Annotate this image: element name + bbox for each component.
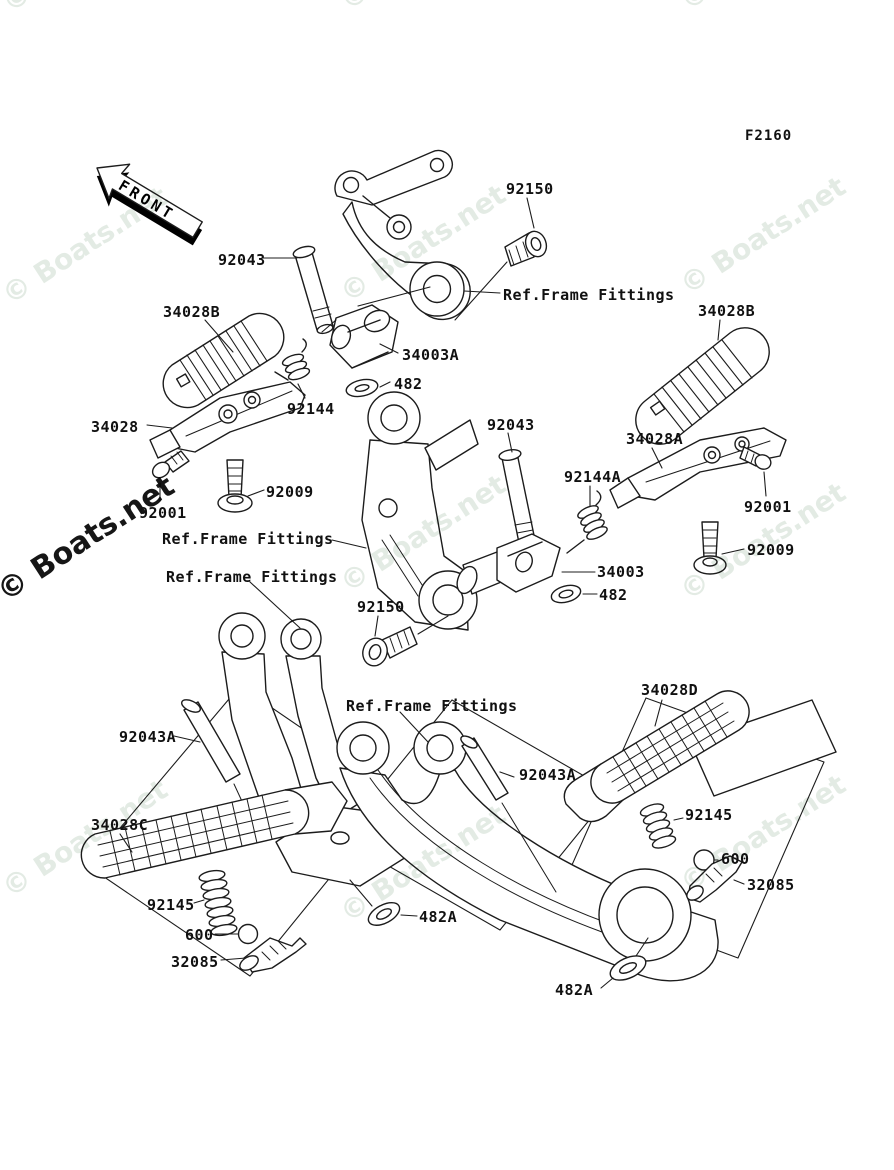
parts-diagram-page: FRONT bbox=[0, 0, 894, 1170]
bolt-92150-top bbox=[505, 228, 550, 266]
part-label-600-right: 600 bbox=[721, 850, 750, 868]
part-label-92144A: 92144A bbox=[564, 468, 621, 486]
part-label-482A-mid: 482A bbox=[419, 908, 457, 926]
part-label-34028B-left: 34028B bbox=[163, 303, 220, 321]
washer-482-right bbox=[549, 582, 582, 605]
part-label-92009-right: 92009 bbox=[747, 541, 795, 559]
part-label-92001-right: 92001 bbox=[744, 498, 792, 516]
ref-frame-fittings-top: Ref.Frame Fittings bbox=[503, 286, 675, 304]
part-label-92144: 92144 bbox=[287, 400, 335, 418]
part-label-32085-left: 32085 bbox=[171, 953, 219, 971]
bolt-92150-bottom bbox=[359, 627, 417, 669]
spring-92144A bbox=[567, 491, 609, 553]
part-label-482A-bottom: 482A bbox=[555, 981, 593, 999]
part-label-34028B-right: 34028B bbox=[698, 302, 755, 320]
diagram-canvas: FRONT bbox=[0, 0, 894, 1170]
washer-482A-mid bbox=[365, 898, 403, 930]
ref-frame-fittings-mid1: Ref.Frame Fittings bbox=[162, 530, 334, 548]
part-label-92009-left: 92009 bbox=[266, 483, 314, 501]
part-label-34028D: 34028D bbox=[641, 681, 698, 699]
front-arrow: FRONT bbox=[83, 151, 212, 254]
part-label-32085-right: 32085 bbox=[747, 876, 795, 894]
part-label-92145-right: 92145 bbox=[685, 806, 733, 824]
bolt-92009-right bbox=[694, 522, 726, 574]
pin-92043-top bbox=[292, 244, 334, 335]
part-label-92043-top: 92043 bbox=[218, 251, 266, 269]
part-label-92043-mid: 92043 bbox=[487, 416, 535, 434]
part-label-92150-top: 92150 bbox=[506, 180, 554, 198]
bolt-92009-left bbox=[218, 460, 252, 512]
part-label-92150-bottom: 92150 bbox=[357, 598, 405, 616]
part-label-92001-left: 92001 bbox=[139, 504, 187, 522]
part-label-92043A-right: 92043A bbox=[519, 766, 576, 784]
part-label-34003A: 34003A bbox=[402, 346, 459, 364]
part-label-34003: 34003 bbox=[597, 563, 645, 581]
bolt-92001-left bbox=[150, 451, 189, 481]
washer-482-mid bbox=[345, 377, 380, 399]
ball-600-left bbox=[239, 925, 258, 944]
part-label-482-mid: 482 bbox=[394, 375, 423, 393]
part-label-34028C: 34028C bbox=[91, 816, 148, 834]
ref-frame-fittings-mid2: Ref.Frame Fittings bbox=[166, 568, 338, 586]
ref-frame-fittings-bottom: Ref.Frame Fittings bbox=[346, 697, 518, 715]
footpeg-rubber-34028B-right bbox=[636, 328, 769, 444]
clevis-34003 bbox=[453, 534, 560, 596]
part-label-482-right: 482 bbox=[599, 586, 628, 604]
middle-frame-fitting-bracket bbox=[362, 392, 478, 630]
part-label-92043A-left: 92043A bbox=[119, 728, 176, 746]
part-label-92145-left: 92145 bbox=[147, 896, 195, 914]
bottom-right-bracket bbox=[337, 700, 836, 981]
spring-92145-right bbox=[639, 802, 677, 851]
part-label-34028: 34028 bbox=[91, 418, 139, 436]
part-label-600-left: 600 bbox=[185, 926, 214, 944]
diagram-code: F2160 bbox=[745, 128, 792, 144]
clevis-34003A bbox=[328, 305, 398, 368]
part-label-34028A: 34028A bbox=[626, 430, 683, 448]
